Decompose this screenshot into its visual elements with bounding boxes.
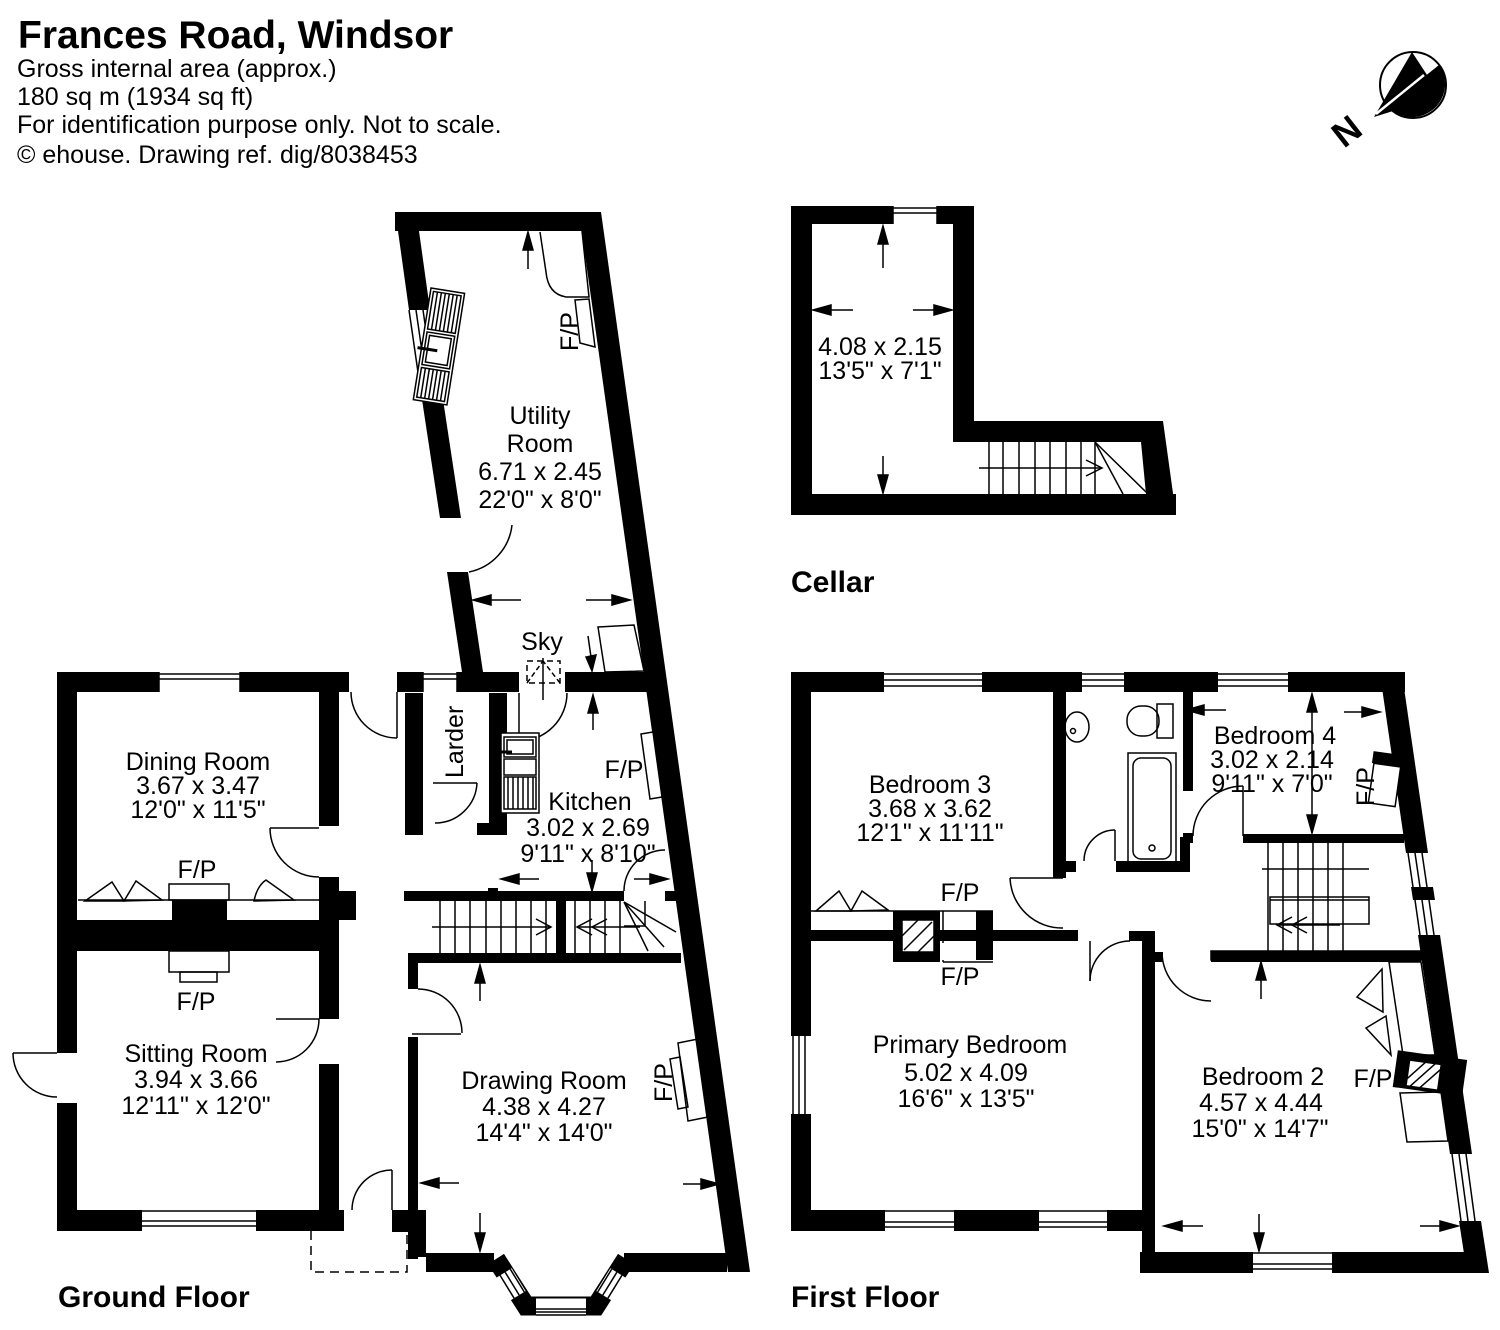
- svg-text:180 sq m (1934 sq ft): 180 sq m (1934 sq ft): [17, 83, 253, 111]
- svg-text:3.94 x 3.66: 3.94 x 3.66: [134, 1066, 258, 1094]
- svg-text:15'0" x 14'7": 15'0" x 14'7": [1191, 1115, 1328, 1143]
- svg-text:F/P: F/P: [605, 756, 644, 784]
- svg-text:Gross internal area (approx.): Gross internal area (approx.): [17, 55, 337, 83]
- svg-text:6.71 x 2.45: 6.71 x 2.45: [478, 458, 602, 486]
- svg-text:Room: Room: [507, 430, 574, 458]
- svg-text:16'6" x 13'5": 16'6" x 13'5": [897, 1085, 1034, 1113]
- svg-text:Sky: Sky: [521, 628, 563, 656]
- svg-text:12'0" x 11'5": 12'0" x 11'5": [130, 796, 265, 824]
- svg-text:12'11" x 12'0": 12'11" x 12'0": [121, 1092, 270, 1120]
- svg-text:Primary Bedroom: Primary Bedroom: [873, 1031, 1068, 1059]
- svg-text:For identification purpose onl: For identification purpose only. Not to …: [17, 111, 502, 139]
- svg-text:F/P: F/P: [178, 856, 217, 884]
- svg-text:F/P: F/P: [1354, 1065, 1393, 1093]
- svg-text:First Floor: First Floor: [791, 1281, 940, 1314]
- svg-text:Utility: Utility: [509, 402, 571, 430]
- svg-text:F/P: F/P: [650, 1063, 678, 1102]
- svg-text:3.02 x 2.69: 3.02 x 2.69: [526, 814, 650, 842]
- svg-text:F/P: F/P: [941, 963, 980, 991]
- svg-text:© ehouse. Drawing ref. dig/80: © ehouse. Drawing ref. dig/8038453: [17, 141, 418, 169]
- svg-text:F/P: F/P: [941, 879, 980, 907]
- svg-text:9'11" x 7'0": 9'11" x 7'0": [1211, 770, 1332, 798]
- svg-text:14'4" x 14'0": 14'4" x 14'0": [475, 1119, 612, 1147]
- svg-text:9'11" x 8'10": 9'11" x 8'10": [520, 840, 655, 868]
- svg-text:4.38 x 4.27: 4.38 x 4.27: [482, 1093, 606, 1121]
- svg-text:Larder: Larder: [441, 706, 469, 778]
- svg-text:Frances Road, Windsor: Frances Road, Windsor: [18, 14, 453, 57]
- svg-text:4.57 x 4.44: 4.57 x 4.44: [1199, 1089, 1323, 1117]
- svg-text:22'0" x 8'0": 22'0" x 8'0": [478, 486, 601, 514]
- svg-text:5.02 x 4.09: 5.02 x 4.09: [904, 1059, 1028, 1087]
- svg-text:F/P: F/P: [1352, 767, 1380, 806]
- svg-text:F/P: F/P: [556, 312, 584, 351]
- svg-text:Kitchen: Kitchen: [548, 788, 631, 816]
- svg-text:Drawing Room: Drawing Room: [461, 1067, 626, 1095]
- svg-text:Ground Floor: Ground Floor: [58, 1281, 250, 1314]
- svg-text:F/P: F/P: [177, 988, 216, 1016]
- svg-text:Cellar: Cellar: [791, 566, 875, 599]
- svg-text:Sitting Room: Sitting Room: [124, 1040, 267, 1068]
- svg-text:Bedroom 2: Bedroom 2: [1202, 1063, 1324, 1091]
- svg-text:13'5" x 7'1": 13'5" x 7'1": [818, 357, 941, 385]
- svg-text:12'1" x 11'11": 12'1" x 11'11": [856, 819, 1003, 847]
